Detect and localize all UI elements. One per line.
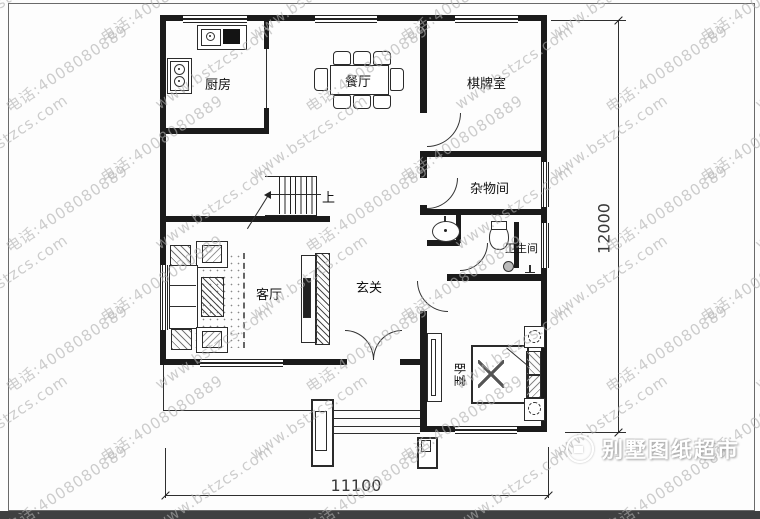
porch-edge-left: [163, 365, 164, 411]
sofa-cushion-line: [169, 306, 196, 307]
armchair-bottom-cushion: [202, 331, 222, 348]
kitchen-door-line: [266, 49, 267, 108]
floor-plan-page: 上 厨房 餐厅 棋牌室: [0, 0, 760, 519]
wall-mahjong-bottom: [420, 151, 547, 157]
extension-line-bottom-left: [165, 448, 166, 498]
dining-chair: [390, 68, 404, 91]
sofa: [169, 265, 198, 329]
wall-storage-bottom: [420, 209, 547, 215]
bath-valve-base: [525, 272, 535, 273]
extension-line-bottom-right: [548, 447, 549, 498]
window-bath-east: [541, 223, 549, 268]
stairs-treads: [279, 176, 316, 214]
wardrobe-door-line: [431, 339, 436, 396]
wash-basin-faucet: [444, 216, 446, 222]
sofa-cushion-line: [169, 285, 196, 286]
dimension-line-right: [618, 20, 619, 433]
tv-feature-wall: [315, 253, 330, 345]
room-label-living: 客厅: [256, 284, 282, 303]
toilet-tank: [491, 221, 507, 230]
porch-column-right-core: [421, 440, 431, 452]
tv-icon: [303, 278, 311, 318]
porch-edge-bottom: [163, 410, 420, 411]
wall-bedroom-left: [420, 311, 427, 432]
wall-kitchen-right-upper: [264, 15, 269, 49]
dining-chair: [314, 68, 328, 91]
window-living-south: [200, 359, 283, 367]
dimension-line-bottom: [165, 495, 549, 496]
dining-chair: [333, 51, 351, 65]
wall-kitchen-right-lower: [264, 108, 269, 134]
armchair-top-cushion: [202, 245, 222, 263]
wall-hall-bottom: [160, 216, 330, 222]
coffee-table: [201, 277, 224, 317]
stove-burner-dot: [209, 35, 211, 37]
footer-bar: [0, 511, 760, 519]
room-label-foyer: 玄关: [356, 277, 382, 296]
window-top-mahjong: [455, 15, 518, 23]
window-bedroom-south: [455, 426, 517, 434]
stairs-up-label: 上: [322, 187, 335, 206]
porch-column-left-core: [315, 411, 327, 451]
window-top-dining: [315, 15, 377, 23]
floor-drain-icon: [503, 261, 514, 272]
entry-step-2: [328, 426, 420, 427]
dining-chair: [353, 51, 371, 65]
dining-chair: [373, 95, 391, 109]
brand-logo-text: 别墅图纸超市: [602, 434, 740, 464]
wall-bath-bottom: [447, 274, 547, 281]
stairs-arrow-line: [269, 194, 321, 195]
pillow: [526, 351, 541, 375]
room-label-dining: 餐厅: [345, 71, 371, 90]
wall-kitchen-bottom: [160, 128, 269, 134]
stove-hob-icon: [223, 29, 240, 44]
window-top-kitchen: [183, 15, 247, 23]
wall-storage-left-a: [420, 157, 427, 178]
room-label-bedroom: 卧室: [452, 362, 469, 386]
brand-logo: 别墅图纸超市: [566, 434, 740, 464]
dining-chair: [353, 95, 371, 109]
room-label-mahjong: 棋牌室: [467, 73, 506, 92]
window-living-west: [160, 265, 168, 330]
bed-quilt-pattern: [478, 360, 504, 388]
room-label-bathroom: 卫生间: [505, 240, 538, 256]
wall-mahjong-left: [420, 15, 427, 113]
plant-icon: [528, 402, 541, 415]
entry-step-3: [328, 433, 420, 434]
entry-step-1: [328, 418, 420, 419]
dimension-width-value: 11100: [320, 476, 392, 495]
wash-basin-drain: [444, 229, 447, 232]
dining-chair: [333, 95, 351, 109]
dining-chair: [373, 51, 391, 65]
plant-icon: [528, 330, 541, 343]
dimension-height-value: 12000: [595, 195, 614, 263]
window-storage-east: [541, 162, 549, 207]
room-label-kitchen: 厨房: [205, 74, 231, 93]
pillow: [526, 375, 541, 398]
side-table-top: [170, 245, 191, 266]
stairs-arrow-head: [264, 191, 271, 199]
room-label-storage: 杂物间: [470, 178, 509, 197]
sink-bowl-2-dot: [178, 80, 180, 82]
extension-line-right-top: [551, 20, 626, 21]
sink-bowl-1-dot: [178, 68, 180, 70]
house-logo-icon: [566, 435, 594, 463]
side-table-bottom: [171, 329, 192, 350]
